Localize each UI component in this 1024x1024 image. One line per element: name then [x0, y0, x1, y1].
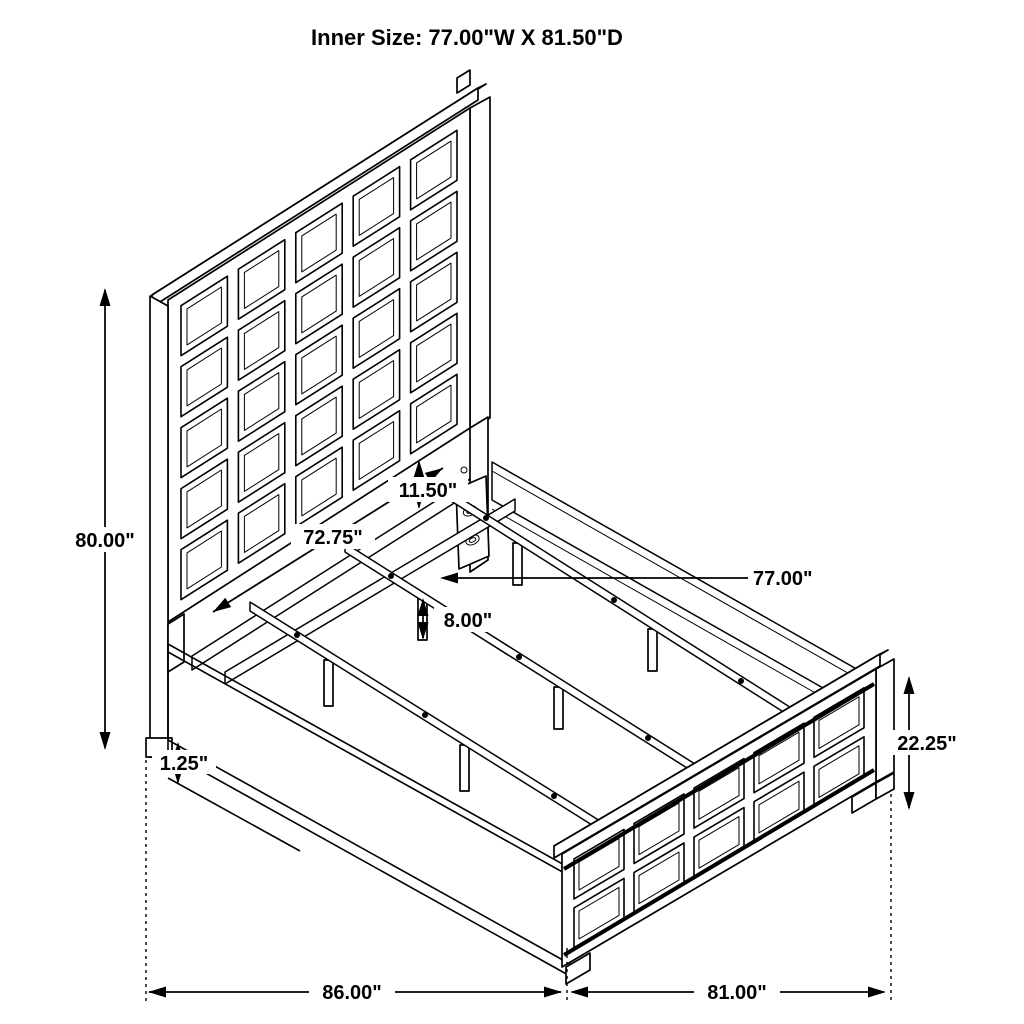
screw-dot: [294, 632, 300, 638]
headboard-tab: [457, 70, 470, 93]
screw-dot: [645, 735, 651, 741]
footboard-right-depth: [876, 659, 894, 782]
arrow-up: [100, 288, 111, 306]
screw-dot: [738, 678, 744, 684]
arrow-left: [148, 987, 166, 998]
bed-dimension-drawing: 80.00" 72.75" 11.50" 77.00": [0, 0, 1024, 1024]
arrow-down: [100, 732, 111, 750]
footboard: [554, 650, 894, 984]
headboard-right-depth: [470, 97, 490, 429]
arrow-lower-left: [213, 598, 231, 612]
support-leg: [460, 745, 469, 791]
dim-headboard-height-label: 80.00": [75, 530, 135, 552]
arrow-left: [440, 573, 458, 584]
headboard-left-post: [150, 296, 168, 757]
support-leg: [324, 660, 333, 706]
arrow-right: [544, 987, 562, 998]
dim-length-right: 81.00": [570, 979, 886, 1004]
screw-dot: [551, 793, 557, 799]
dim-length-left-label: 86.00": [322, 982, 382, 1004]
screw-dot: [422, 712, 428, 718]
drawing-title: Inner Size: 77.00"W X 81.50"D: [311, 25, 623, 50]
support-leg: [648, 629, 657, 671]
front-side-rail: [168, 644, 584, 976]
arrow-left: [570, 987, 588, 998]
dim-headboard-height: 80.00": [63, 288, 147, 750]
screw-dot: [388, 573, 394, 579]
dim-panel-to-rail-label: 11.50": [399, 480, 457, 502]
front-rail-lip: [168, 752, 570, 976]
arrow-right: [868, 987, 886, 998]
dim-footboard-height: 22.25": [884, 676, 970, 810]
dim-length-left: 86.00": [148, 979, 562, 1004]
front-rail-top-edge: [168, 644, 584, 876]
arrow-down: [904, 792, 915, 810]
dim-footboard-height-label: 22.25": [897, 733, 957, 755]
back-rail-top-edge: [492, 471, 890, 697]
page: { "title": "Inner Size: 77.00\"W X 81.50…: [0, 0, 1024, 1024]
dim-length-right-label: 81.00": [707, 982, 767, 1004]
screw-dot: [483, 515, 489, 521]
screw-dot: [611, 597, 617, 603]
support-rail: [250, 602, 640, 855]
screw-dot: [516, 654, 522, 660]
arrow-up: [904, 676, 915, 694]
dim-slat-leg-label: 8.00": [444, 610, 492, 632]
support-leg: [554, 687, 563, 729]
dim-inner-width-label: 77.00": [753, 568, 813, 590]
dim-headboard-width-label: 72.75": [303, 527, 363, 549]
dim-rail-lip-label: 1.25": [160, 753, 208, 775]
bracket-screw: [461, 467, 467, 473]
headboard-post-inner: [168, 614, 184, 672]
